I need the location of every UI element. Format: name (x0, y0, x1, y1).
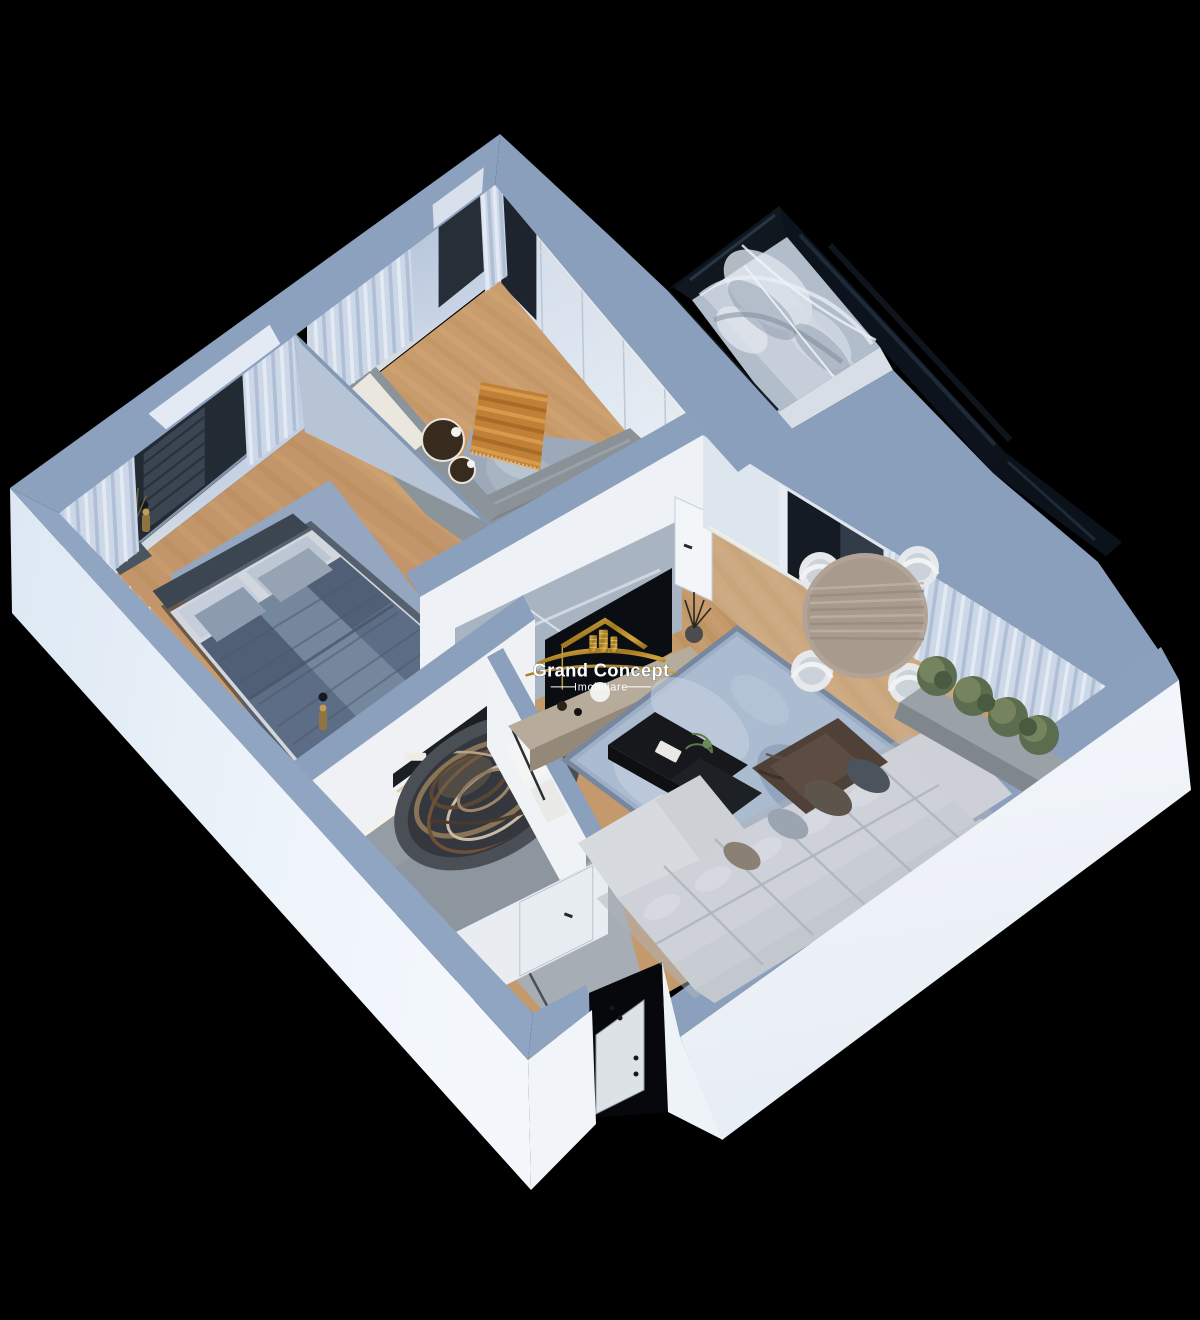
svg-text:Grand Concept: Grand Concept (532, 660, 669, 681)
svg-text:Imobiliare: Imobiliare (574, 681, 628, 693)
